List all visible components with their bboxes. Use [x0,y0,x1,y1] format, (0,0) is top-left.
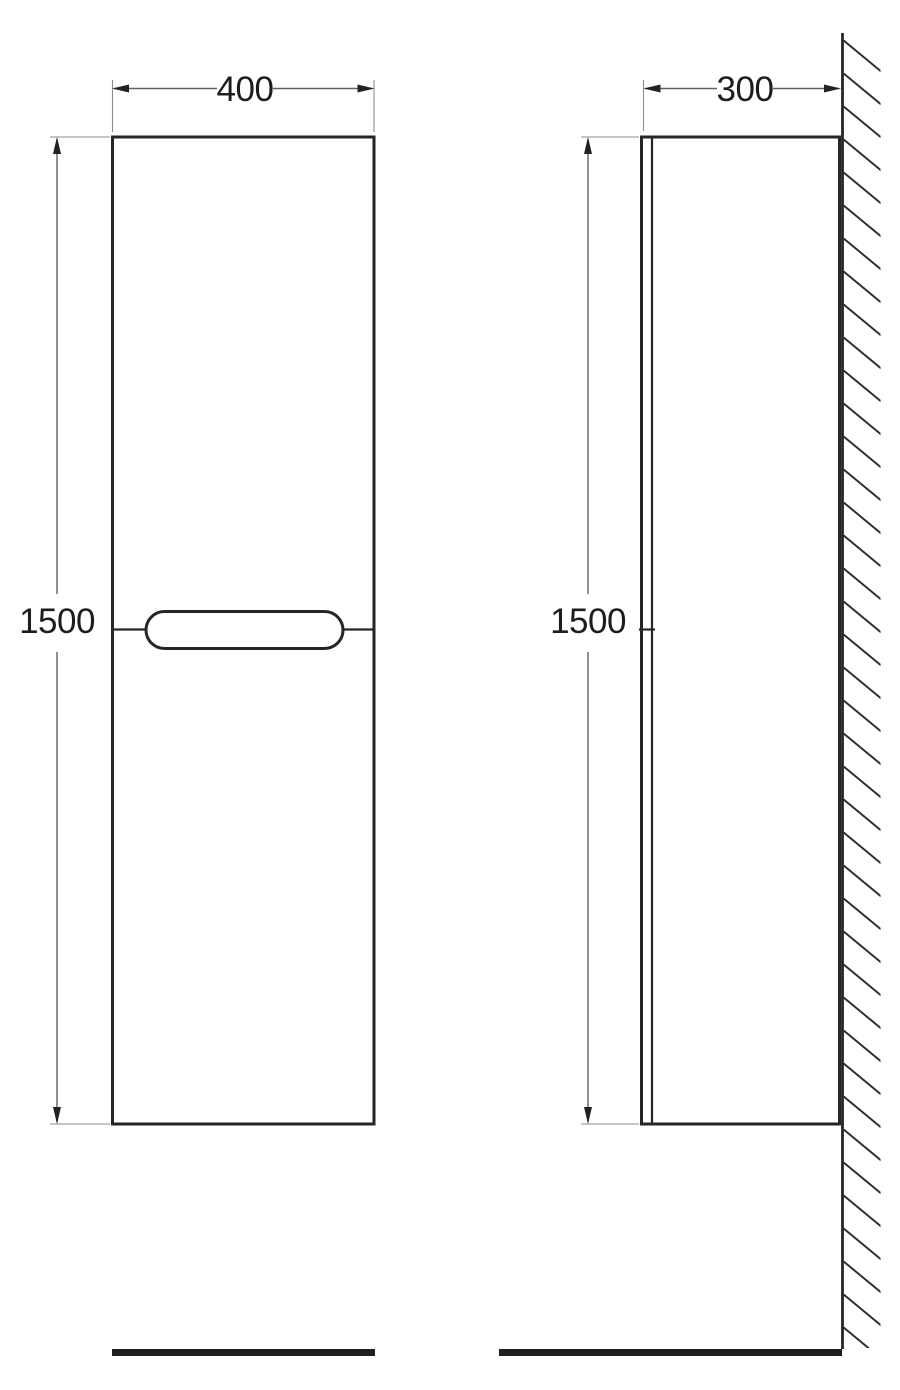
drawing-canvas: 400 1500 300 [0,0,900,1390]
arrow-up-icon [53,137,61,154]
wall-hatching [844,40,881,1348]
arrow-up-icon [584,137,592,154]
arrow-right-icon [358,85,375,93]
front-height-value: 1500 [19,602,95,641]
side-height-dimension: 1500 [550,137,639,1124]
arrow-left-icon [112,85,129,93]
arrow-right-icon [824,85,841,93]
cabinet-side-outline [642,137,840,1124]
side-view [639,137,840,1124]
side-depth-value: 300 [717,70,774,109]
arrow-left-icon [644,85,661,93]
side-depth-dimension: 300 [644,70,842,131]
side-height-value: 1500 [550,602,626,641]
front-height-dimension: 1500 [19,137,110,1124]
technical-drawing: 400 1500 300 [0,0,900,1390]
wall [843,33,881,1349]
front-view [113,137,375,1124]
front-width-dimension: 400 [112,70,375,132]
arrow-down-icon [53,1107,61,1124]
arrow-down-icon [584,1107,592,1124]
front-width-value: 400 [217,70,274,109]
door-handle [146,612,343,649]
